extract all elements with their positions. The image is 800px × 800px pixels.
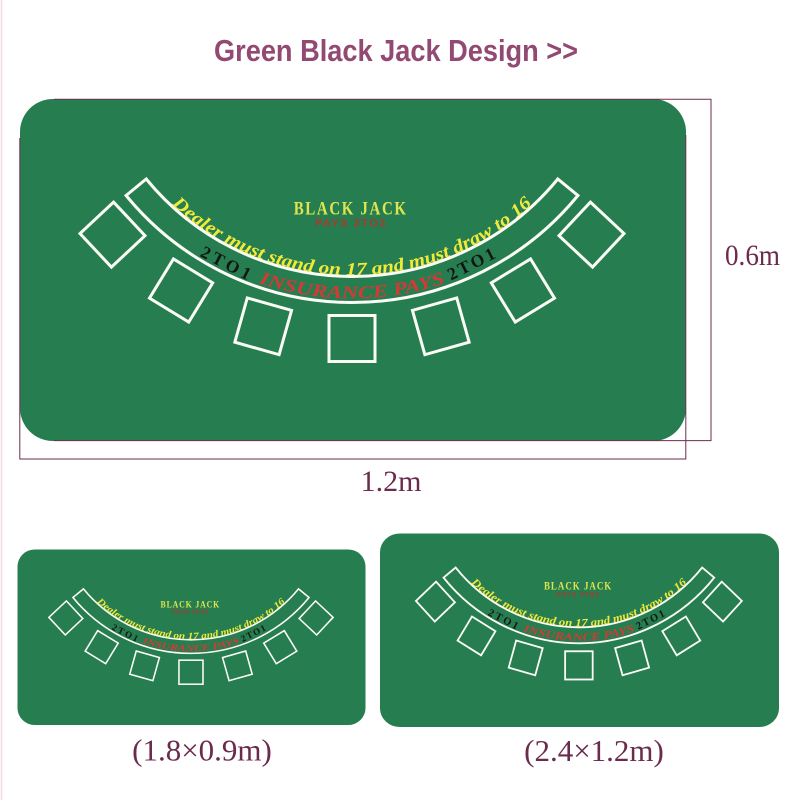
svg-text:1.2m: 1.2m bbox=[361, 465, 422, 498]
svg-text:(1.8×0.9m): (1.8×0.9m) bbox=[132, 733, 272, 768]
svg-text:Green Black Jack Design >>: Green Black Jack Design >> bbox=[214, 33, 578, 68]
svg-text:(2.4×1.2m): (2.4×1.2m) bbox=[524, 733, 664, 768]
svg-text:0.6m: 0.6m bbox=[725, 239, 780, 272]
